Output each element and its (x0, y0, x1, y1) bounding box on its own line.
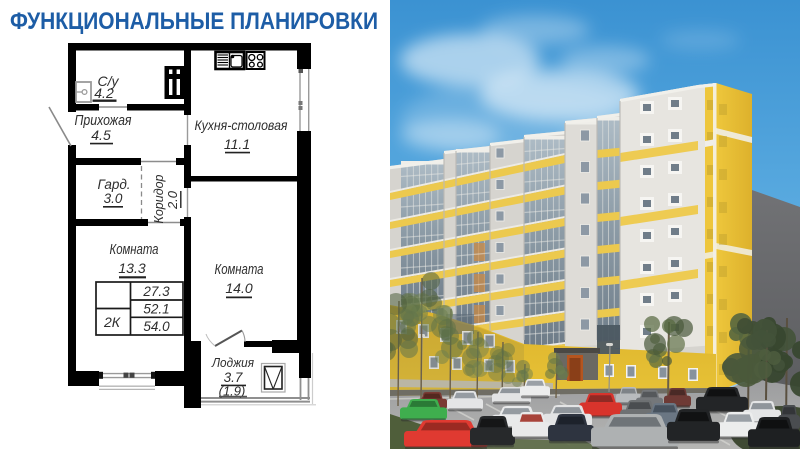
svg-text:2К: 2К (103, 314, 121, 330)
svg-text:Гард.: Гард. (97, 177, 130, 192)
svg-text:52.1: 52.1 (143, 302, 169, 317)
svg-text:ФУНКЦИОНАЛЬНЫЕ ПЛАНИРОВКИ: ФУНКЦИОНАЛЬНЫЕ ПЛАНИРОВКИ (10, 8, 378, 35)
svg-text:27.3: 27.3 (142, 284, 170, 299)
svg-text:3.0: 3.0 (104, 191, 123, 206)
svg-text:Лоджия: Лоджия (211, 355, 254, 370)
svg-text:4.2: 4.2 (94, 85, 114, 101)
svg-text:4.5: 4.5 (91, 127, 111, 143)
svg-text:2.0: 2.0 (165, 190, 180, 210)
svg-text:Комната: Комната (215, 262, 264, 278)
svg-text:11.1: 11.1 (224, 136, 250, 152)
svg-text:13.3: 13.3 (118, 260, 145, 276)
svg-text:Коридор: Коридор (152, 174, 166, 223)
svg-text:Комната: Комната (110, 242, 159, 258)
svg-text:54.0: 54.0 (143, 319, 170, 334)
svg-text:Кухня-столовая: Кухня-столовая (195, 117, 288, 133)
svg-text:14.0: 14.0 (225, 280, 252, 296)
